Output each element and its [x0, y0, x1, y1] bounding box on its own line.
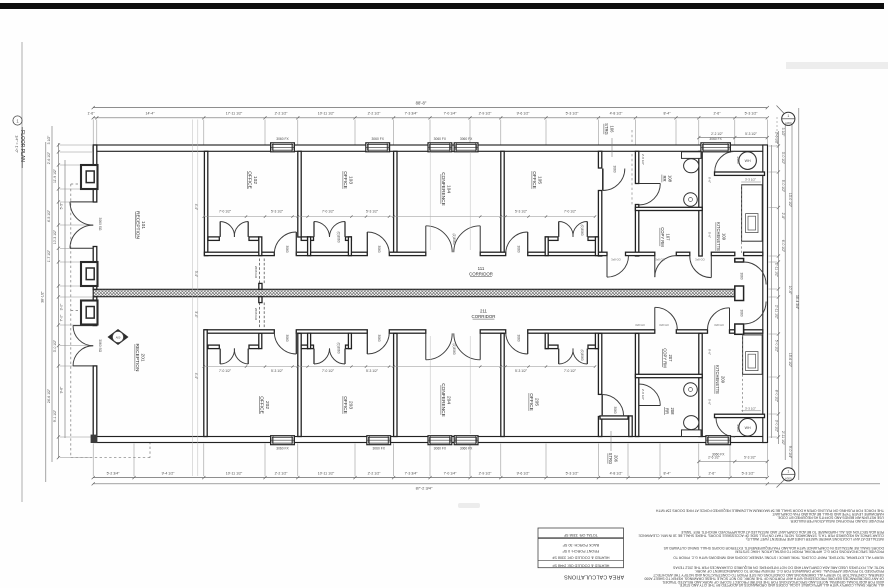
svg-text:BACK PORCH: 30 SF: BACK PORCH: 30 SF: [562, 543, 599, 547]
svg-text:207: 207: [668, 355, 673, 363]
svg-text:5'-2 3/4": 5'-2 3/4": [107, 471, 121, 475]
svg-text:3'-0 1/2": 3'-0 1/2": [781, 152, 785, 165]
svg-text:2'-6 1/2": 2'-6 1/2": [47, 151, 51, 164]
svg-text:103: 103: [348, 176, 354, 184]
svg-text:2'-2 1/2": 2'-2 1/2": [711, 132, 723, 136]
svg-text:CLEAR SPACE AS REQUIRED PER T.: CLEAR SPACE AS REQUIRED PER T.A.S. STAND…: [638, 534, 884, 538]
svg-text:2'-2 1/2": 2'-2 1/2": [368, 471, 382, 475]
svg-text:RR: RR: [662, 175, 667, 181]
svg-text:205: 205: [534, 398, 540, 406]
svg-text:204: 204: [446, 396, 452, 404]
svg-text:102: 102: [252, 176, 258, 184]
svg-text:2'-2 1/2": 2'-2 1/2": [368, 112, 382, 116]
svg-text:7'-0 1/2": 7'-0 1/2": [219, 210, 232, 214]
svg-text:5'-3 1/2": 5'-3 1/2": [745, 132, 757, 136]
svg-text:5'-3 1/2": 5'-3 1/2": [745, 112, 759, 116]
svg-text:5'-3 1/2": 5'-3 1/2": [566, 471, 580, 475]
svg-text:1'-6": 1'-6": [88, 112, 96, 116]
svg-text:109: 109: [722, 233, 727, 241]
svg-text:9'-6 1/2": 9'-6 1/2": [517, 112, 531, 116]
svg-text:3'-0": 3'-0": [60, 303, 64, 311]
svg-text:10'-11 1/2": 10'-11 1/2": [318, 471, 335, 475]
svg-text:9'-0 1/4": 9'-0 1/4": [788, 446, 792, 459]
svg-text:3'-3 1/2": 3'-3 1/2": [745, 406, 756, 410]
svg-text:3060 FX: 3060 FX: [460, 137, 473, 141]
svg-text:111: 111: [478, 266, 485, 271]
svg-text:24'-6 1/2": 24'-6 1/2": [47, 388, 51, 403]
svg-text:2'-8 1/2": 2'-8 1/2": [641, 154, 645, 165]
svg-text:WH: WH: [745, 159, 751, 163]
svg-text:HEATED & COOLED OB: 2448 SF: HEATED & COOLED OB: 2448 SF: [552, 564, 610, 568]
svg-text:ALL WORK SHALL COMPLY WITH ALL: ALL WORK SHALL COMPLY WITH ALL APPLICABL…: [679, 583, 884, 587]
svg-text:3060 FX: 3060 FX: [276, 446, 289, 450]
svg-text:7'-0 1/2": 7'-0 1/2": [564, 369, 577, 373]
svg-text:5'-3 1/2": 5'-3 1/2": [566, 112, 580, 116]
svg-text:88'-8": 88'-8": [416, 101, 427, 106]
svg-text:STRG: STRG: [604, 123, 609, 135]
svg-text:(0)3060: (0)3060: [580, 225, 584, 236]
svg-text:5'-3 1/2": 5'-3 1/2": [271, 369, 284, 373]
svg-text:(2)3060: (2)3060: [452, 344, 456, 355]
svg-text:STRG: STRG: [608, 453, 613, 465]
svg-text:3x8 GO: 3x8 GO: [655, 257, 665, 261]
svg-text:3060: 3060: [516, 334, 520, 341]
svg-text:3'-4": 3'-4": [194, 311, 198, 317]
svg-text:87'-2 3/4": 87'-2 3/4": [416, 486, 433, 491]
svg-text:10'-11 1/2": 10'-11 1/2": [226, 471, 243, 475]
svg-text:VERIFY ALL EXTERNAL TEXTURE, P: VERIFY ALL EXTERNAL TEXTURE, PAINT COLOR…: [673, 555, 884, 559]
svg-text:108: 108: [668, 175, 673, 183]
svg-text:8'-6": 8'-6": [708, 349, 712, 355]
svg-text:3060 FX: 3060 FX: [276, 137, 289, 141]
svg-text:3060: 3060: [613, 165, 617, 172]
svg-text:3 1/2": 3 1/2": [47, 135, 51, 145]
svg-text:1'-7 1/2": 1'-7 1/2": [47, 249, 51, 262]
svg-text:A300: A300: [785, 477, 792, 481]
svg-text:5'-3 1/2": 5'-3 1/2": [515, 210, 528, 214]
svg-text:211: 211: [480, 308, 488, 313]
svg-text:3060: 3060: [516, 245, 520, 252]
svg-text:5'-3 1/2": 5'-3 1/2": [744, 456, 756, 460]
svg-text:9'-6": 9'-6": [60, 386, 64, 394]
svg-text:3060 FX: 3060 FX: [709, 137, 722, 141]
svg-text:208: 208: [670, 408, 675, 416]
svg-text:RR: RR: [665, 408, 670, 414]
svg-text:7'-0": 7'-0": [60, 314, 64, 322]
svg-text:CORRIDOR: CORRIDOR: [472, 314, 496, 319]
svg-text:5'-3 1/2": 5'-3 1/2": [366, 369, 379, 373]
svg-text:17'-11 1/2": 17'-11 1/2": [226, 112, 243, 116]
svg-text:38'-4 3/4": 38'-4 3/4": [795, 295, 799, 310]
svg-text:3x8 GO: 3x8 GO: [714, 323, 724, 327]
svg-text:2'-6": 2'-6": [714, 112, 722, 116]
svg-text:105: 105: [537, 176, 543, 184]
svg-text:2'-6": 2'-6": [709, 471, 717, 475]
svg-text:2'-11 1/2": 2'-11 1/2": [781, 431, 785, 446]
svg-text:9'-6 1/2": 9'-6 1/2": [517, 471, 531, 475]
svg-text:201: 201: [140, 353, 146, 361]
svg-text:2'-11 1/2": 2'-11 1/2": [774, 263, 778, 278]
svg-text:10'-11 1/2": 10'-11 1/2": [318, 112, 335, 116]
svg-text:10'-3 1/2": 10'-3 1/2": [53, 229, 57, 244]
svg-text:1: 1: [787, 470, 789, 474]
svg-text:NOTE: ALL FIXTURES USED ARE AD: NOTE: ALL FIXTURES USED ARE ADA COMPLIAN…: [672, 566, 884, 570]
svg-text:15'-6 1/2": 15'-6 1/2": [788, 353, 792, 368]
svg-text:A00: A00: [116, 335, 121, 339]
svg-text:A300: A300: [785, 121, 792, 125]
svg-text:3x8 GO: 3x8 GO: [695, 257, 705, 261]
svg-text:10'-6": 10'-6": [788, 286, 792, 295]
svg-text:7'-0 1/4": 7'-0 1/4": [444, 471, 458, 475]
svg-text:INSTALLED AT ANY LOCATIONS WHE: INSTALLED AT ANY LOCATIONS WHERE WATER L…: [745, 537, 884, 541]
svg-text:HEATED & COOLED OR: 3308 SF: HEATED & COOLED OR: 3308 SF: [551, 556, 609, 560]
svg-text:9'-1 1/2": 9'-1 1/2": [53, 409, 57, 422]
svg-text:9'-4 1/2": 9'-4 1/2": [162, 471, 176, 475]
svg-text:7'-3 3/4": 7'-3 3/4": [405, 112, 419, 116]
svg-text:2868 GO: 2868 GO: [254, 308, 258, 321]
svg-text:8'-4": 8'-4": [664, 112, 672, 116]
svg-text:3060 FX: 3060 FX: [372, 446, 385, 450]
svg-text:5'-0 1/2": 5'-0 1/2": [774, 340, 778, 353]
svg-text:104: 104: [446, 185, 452, 193]
svg-text:8'-0 1/2": 8'-0 1/2": [774, 390, 778, 403]
svg-text:8'-6": 8'-6": [708, 177, 712, 183]
svg-text:DOORS SHALL BE INSTALLED IN CO: DOORS SHALL BE INSTALLED IN COMPLIANCE W…: [663, 546, 884, 550]
svg-text:KITCHENETTE: KITCHENETTE: [715, 365, 720, 394]
svg-text:5'-5": 5'-5": [60, 202, 64, 210]
svg-text:OF ANY DISCREPANCIES BEFORE PR: OF ANY DISCREPANCIES BEFORE PROCEEDING W…: [644, 576, 884, 580]
svg-text:3x8 GO: 3x8 GO: [659, 323, 669, 327]
svg-text:3060 FX: 3060 FX: [712, 452, 725, 456]
svg-text:38'-1/2": 38'-1/2": [41, 290, 45, 302]
svg-text:3060 FX: 3060 FX: [460, 446, 473, 450]
svg-text:11'-9 1/2": 11'-9 1/2": [53, 168, 57, 183]
svg-text:3060: 3060: [377, 245, 381, 252]
svg-text:GENERAL CONTRACTOR TO VERIFY A: GENERAL CONTRACTOR TO VERIFY ALL DIMENSI…: [652, 573, 884, 577]
svg-text:7'-0 1/4": 7'-0 1/4": [444, 112, 458, 116]
svg-text:106: 106: [610, 126, 615, 134]
svg-text:3060 FX: 3060 FX: [371, 137, 384, 141]
svg-text:4'-8 1/2": 4'-8 1/2": [610, 471, 624, 475]
svg-text:101: 101: [140, 221, 146, 229]
svg-text:14'-4": 14'-4": [146, 112, 156, 116]
svg-text:3060 FX: 3060 FX: [434, 446, 447, 450]
svg-text:1: 1: [787, 114, 789, 118]
svg-text:3 1/2": 3 1/2": [781, 128, 785, 138]
svg-text:3'-0 1/2": 3'-0 1/2": [53, 339, 57, 352]
svg-text:107: 107: [666, 234, 671, 242]
svg-text:THE FORCE FOR PUSHING OR PULLI: THE FORCE FOR PUSHING OR PULLING OPEN A …: [655, 509, 884, 513]
svg-text:PER ADA SECTION 404. ALL HARDW: PER ADA SECTION 404. ALL HARDWARE TO BE …: [680, 530, 884, 534]
svg-text:TOTAL OR: 3358 SF: TOTAL OR: 3358 SF: [563, 533, 598, 537]
svg-text:CORRIDOR: CORRIDOR: [469, 271, 493, 276]
svg-text:AREA CALCULATIONS: AREA CALCULATIONS: [564, 574, 624, 580]
svg-text:7'-0 1/2": 7'-0 1/2": [322, 369, 335, 373]
svg-text:2'-2 1/2": 2'-2 1/2": [275, 471, 289, 475]
svg-text:3060: 3060: [613, 406, 617, 413]
svg-text:5'-0 1/2": 5'-0 1/2": [781, 180, 785, 193]
svg-text:3060: 3060: [740, 272, 744, 279]
svg-text:COPY RM: COPY RM: [660, 227, 665, 247]
svg-text:4'-4": 4'-4": [194, 204, 198, 210]
svg-text:(0)3060: (0)3060: [336, 232, 340, 243]
svg-text:3060: 3060: [740, 309, 744, 316]
svg-text:PROVIDE SOUND PROOFING INSULAT: PROVIDE SOUND PROOFING INSULATION PER BU…: [790, 519, 884, 523]
svg-text:4'-5 1/2": 4'-5 1/2": [47, 209, 51, 222]
svg-text:3x8 GO: 3x8 GO: [635, 323, 645, 327]
svg-text:PROPOSED TO PROVIDE APPROVAL.: PROPOSED TO PROVIDE APPROVAL. SHOP DRAWI…: [694, 569, 884, 573]
svg-text:(2)3060: (2)3060: [452, 234, 456, 245]
svg-text:5'-3 1/2": 5'-3 1/2": [366, 210, 379, 214]
svg-text:3'-0 1/2": 3'-0 1/2": [774, 420, 778, 433]
svg-text:3060 FX: 3060 FX: [434, 137, 447, 141]
svg-text:13'-0 1/2": 13'-0 1/2": [788, 193, 792, 208]
svg-text:4'-4": 4'-4": [194, 373, 198, 379]
svg-text:3060: 3060: [285, 334, 289, 341]
svg-text:3x8 GO: 3x8 GO: [611, 257, 621, 261]
svg-text:202: 202: [264, 401, 270, 409]
svg-text:1/4" = 1'-0": 1/4" = 1'-0": [15, 135, 19, 153]
svg-text:PROVIDE SPECIFICATIONS FOR G.C: PROVIDE SPECIFICATIONS FOR G.C. APPROVAL…: [735, 550, 884, 554]
svg-text:3060 SG: 3060 SG: [98, 217, 102, 230]
svg-text:5'-3 1/2": 5'-3 1/2": [742, 471, 756, 475]
svg-text:2'-9 1/2": 2'-9 1/2": [479, 471, 493, 475]
svg-text:7'-0 1/2": 7'-0 1/2": [564, 210, 577, 214]
svg-text:5'-3 1/2": 5'-3 1/2": [271, 210, 284, 214]
svg-text:203: 203: [348, 401, 354, 409]
svg-text:5'-3 1/2": 5'-3 1/2": [515, 369, 528, 373]
svg-text:209: 209: [721, 376, 726, 384]
svg-text:3'-4": 3'-4": [194, 271, 198, 277]
svg-text:7'-0 1/2": 7'-0 1/2": [219, 369, 232, 373]
svg-text:2868 GO: 2868 GO: [254, 266, 258, 279]
svg-text:2'-8": 2'-8": [781, 213, 785, 221]
svg-text:2'-11 1/2": 2'-11 1/2": [774, 305, 778, 320]
svg-text:KITCHENETTE: KITCHENETTE: [716, 222, 721, 251]
svg-text:WH: WH: [745, 426, 751, 430]
svg-text:206: 206: [614, 455, 619, 463]
svg-text:3060: 3060: [377, 334, 381, 341]
svg-text:(0)3060: (0)3060: [580, 350, 584, 361]
svg-text:2'-2 1/2": 2'-2 1/2": [275, 112, 289, 116]
svg-text:4'-8 1/2": 4'-8 1/2": [610, 112, 624, 116]
svg-text:8'-4": 8'-4": [664, 471, 672, 475]
svg-text:FRONT PORCH: 0 SF: FRONT PORCH: 0 SF: [562, 549, 600, 553]
svg-text:7'-0 1/2": 7'-0 1/2": [322, 210, 335, 214]
svg-text:2'-6 1/2": 2'-6 1/2": [774, 132, 778, 145]
svg-text:2'-9 1/2": 2'-9 1/2": [479, 112, 493, 116]
svg-text:3060 SG: 3060 SG: [98, 339, 102, 352]
svg-text:2'-8 1/2": 2'-8 1/2": [641, 389, 645, 400]
svg-text:6'-0 1/2": 6'-0 1/2": [781, 240, 785, 253]
svg-text:HARDWARE LEVER TYPE AND SHALL: HARDWARE LEVER TYPE AND SHALL BE ADA AND…: [771, 512, 884, 516]
svg-text:(0)3060: (0)3060: [336, 343, 340, 354]
svg-text:5'-6": 5'-6": [708, 399, 712, 405]
svg-text:COPY RM: COPY RM: [663, 348, 668, 368]
svg-text:5'-6": 5'-6": [708, 232, 712, 238]
svg-text:7'-3 3/4": 7'-3 3/4": [405, 471, 419, 475]
svg-text:3060: 3060: [285, 245, 289, 252]
svg-text:USE RETURN AIR BENDS AND SOFFI: USE RETURN AIR BENDS AND SOFFITS AS REQU…: [777, 516, 884, 520]
svg-text:3'-3 1/2": 3'-3 1/2": [745, 178, 756, 182]
